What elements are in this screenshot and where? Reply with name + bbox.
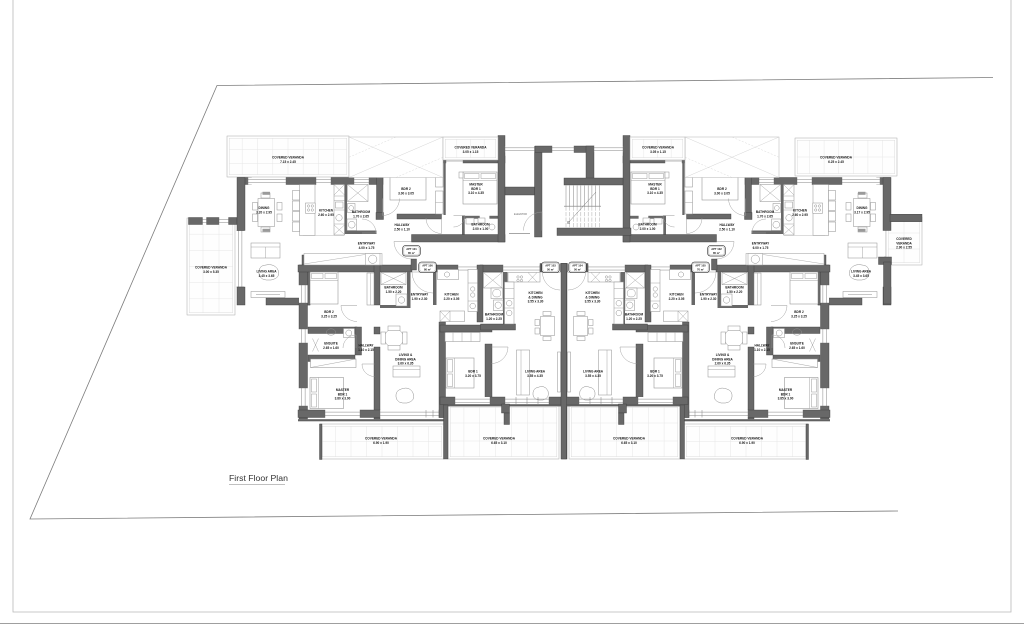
svg-text:APT 103: APT 103 <box>545 263 556 267</box>
svg-text:KITCHEN2.20 x 3.05: KITCHEN2.20 x 3.05 <box>444 293 460 301</box>
svg-text:LIVING AREA3.55 x 4.35: LIVING AREA3.55 x 4.35 <box>525 370 546 378</box>
svg-text:KITCHEN& DINING3.55 x 3.30: KITCHEN& DINING3.55 x 3.30 <box>528 291 544 304</box>
svg-text:HALLWAY2.50 x 1.10: HALLWAY2.50 x 1.10 <box>394 223 410 231</box>
svg-text:ENSUITE2.65 x 1.60: ENSUITE2.65 x 1.60 <box>789 342 805 350</box>
svg-text:ENTRYWAY6.00 x 1.75: ENTRYWAY6.00 x 1.75 <box>752 242 770 250</box>
svg-text:First Floor Plan: First Floor Plan <box>229 473 288 483</box>
svg-text:ENTRYWAY1.90 x 2.30: ENTRYWAY1.90 x 2.30 <box>411 293 429 301</box>
svg-text:85 m²: 85 m² <box>713 251 720 255</box>
svg-text:ENSUITE2.65 x 1.60: ENSUITE2.65 x 1.60 <box>323 342 339 350</box>
svg-text:BATHROOM1.70 x 2.65: BATHROOM1.70 x 2.65 <box>756 210 775 218</box>
svg-text:APT 102: APT 102 <box>711 247 722 251</box>
svg-text:APT 105: APT 105 <box>695 263 706 267</box>
svg-text:KITCHEN2.20 x 3.05: KITCHEN2.20 x 3.05 <box>669 293 685 301</box>
svg-text:ENTRYWAY4.00 x 1.75: ENTRYWAY4.00 x 1.75 <box>358 242 376 250</box>
svg-text:BATHROOM1.20 x 2.25: BATHROOM1.20 x 2.25 <box>485 313 504 321</box>
svg-text:BATHROOM2.00 x 1.00: BATHROOM2.00 x 1.00 <box>638 223 657 231</box>
svg-text:BATHROOM1.50 x 2.20: BATHROOM1.50 x 2.20 <box>725 286 744 294</box>
svg-text:HALLWAY1.10 x 2.15: HALLWAY1.10 x 2.15 <box>358 344 374 352</box>
svg-text:LIVING AREA3.55 x 4.35: LIVING AREA3.55 x 4.35 <box>583 370 604 378</box>
svg-text:ENTRYWAY1.90 x 2.30: ENTRYWAY1.90 x 2.30 <box>700 293 718 301</box>
svg-text:APT 104: APT 104 <box>572 263 583 267</box>
svg-text:KITCHEN2.60 x 2.95: KITCHEN2.60 x 2.95 <box>318 209 334 217</box>
svg-text:COVEREDVERANDA2.90 x 2.55: COVEREDVERANDA2.90 x 2.55 <box>896 237 912 250</box>
svg-text:KITCHEN& DINING3.55 x 3.30: KITCHEN& DINING3.55 x 3.30 <box>585 291 601 304</box>
svg-text:85 m²: 85 m² <box>408 251 415 255</box>
svg-text:BATHROOM1.20 x 2.25: BATHROOM1.20 x 2.25 <box>625 313 644 321</box>
svg-text:BATHROOM1.70 x 2.65: BATHROOM1.70 x 2.65 <box>352 210 371 218</box>
svg-text:BATHROOM1.50 x 2.20: BATHROOM1.50 x 2.20 <box>384 286 403 294</box>
svg-text:HALLWAY1.10 x 2.15: HALLWAY1.10 x 2.15 <box>754 344 770 352</box>
svg-text:50 m²: 50 m² <box>547 268 554 272</box>
svg-text:LIVING AREA3.45 x 3.65: LIVING AREA3.45 x 3.65 <box>851 270 872 278</box>
svg-text:80 m²: 80 m² <box>424 268 431 272</box>
svg-text:KITCHEN2.60 x 2.95: KITCHEN2.60 x 2.95 <box>792 209 808 217</box>
svg-text:ELEVATOR: ELEVATOR <box>514 213 527 216</box>
svg-text:HALLWAY2.50 x 1.10: HALLWAY2.50 x 1.10 <box>719 223 735 231</box>
svg-text:BATHROOM2.00 x 1.00: BATHROOM2.00 x 1.00 <box>471 223 490 231</box>
svg-text:50 m²: 50 m² <box>574 268 581 272</box>
svg-text:APT 101: APT 101 <box>406 247 417 251</box>
svg-text:70 m²: 70 m² <box>697 268 704 272</box>
svg-text:LIVING AREA3.45 x 3.65: LIVING AREA3.45 x 3.65 <box>256 270 277 278</box>
svg-text:APT 106: APT 106 <box>422 263 433 267</box>
